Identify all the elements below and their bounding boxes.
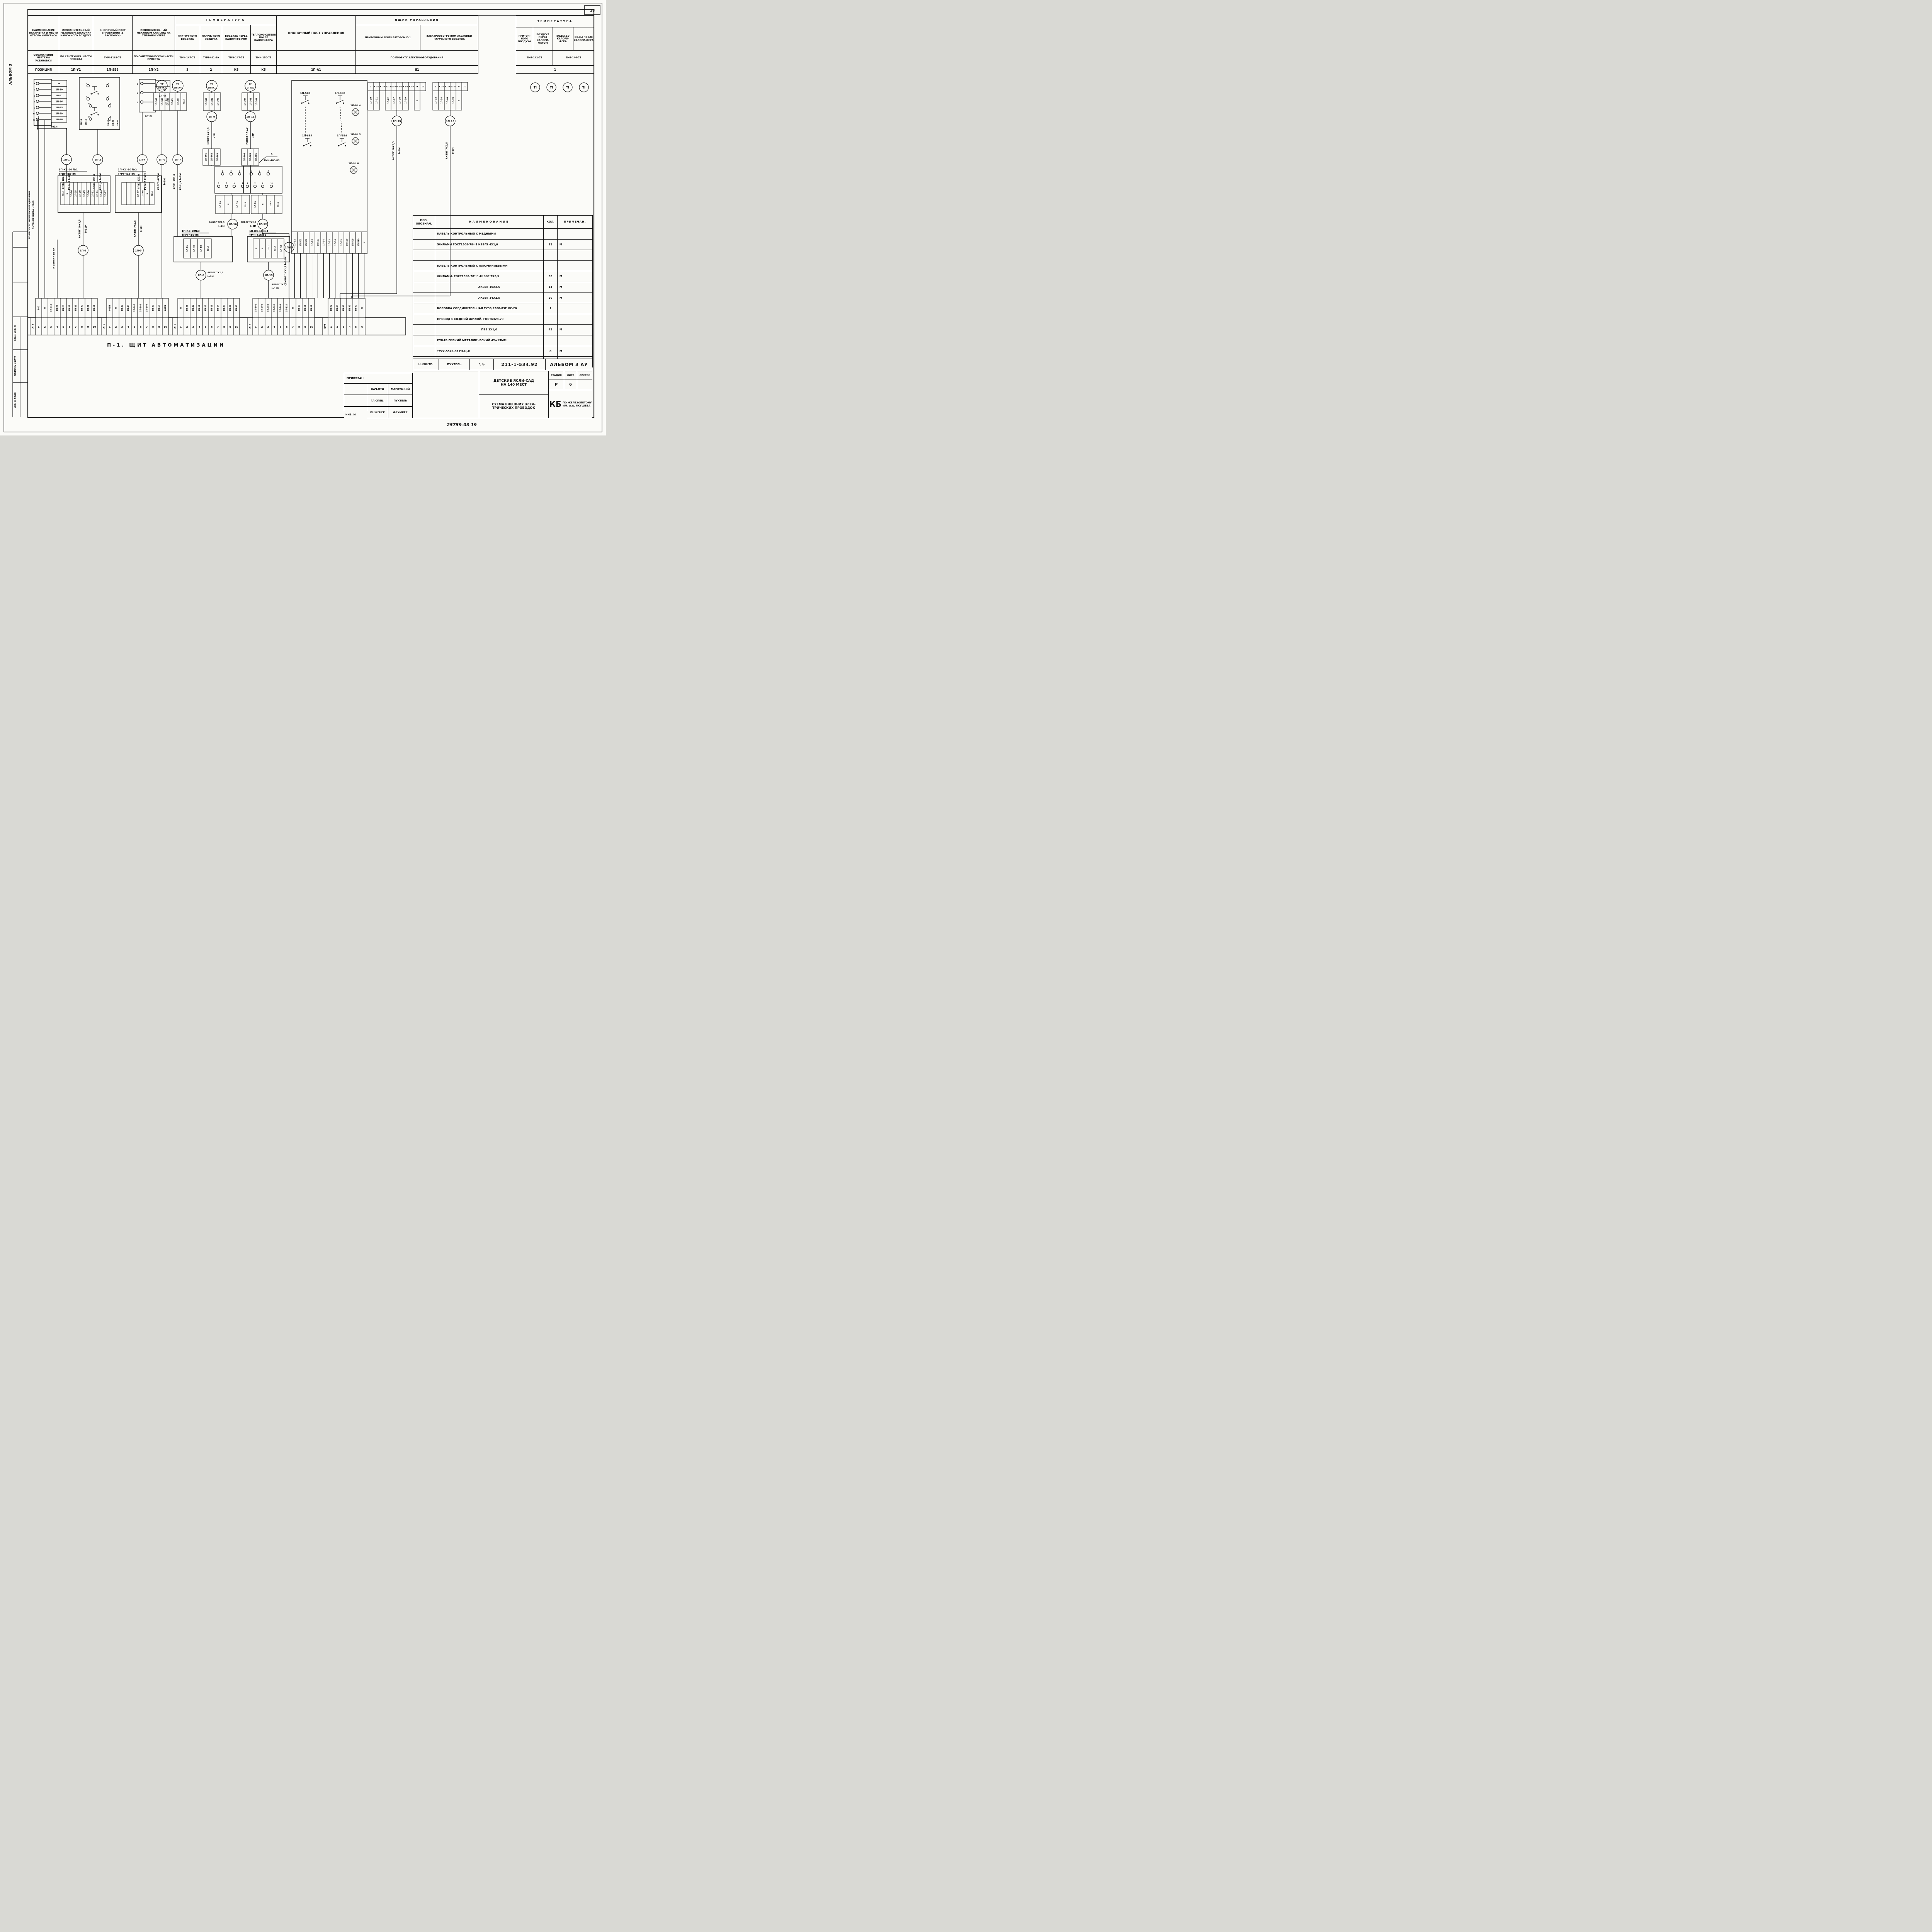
wire-label: 801N [245, 202, 247, 207]
sheet-title: СХЕМА ВНЕШНИХ ЭЛЕК- ТРИЧЕСКИХ ПРОВОДОК [479, 395, 549, 418]
position-circle-label: 1П-2 [95, 158, 101, 161]
org-name-line2: ИМ. А.А. ЯКУШЕВА [563, 404, 592, 407]
rotated-annotation: 1П-28 [112, 120, 114, 126]
hdr-damper: ИСПОЛНИТЕЛЬ-НЫЙ МЕХАНИЗМ ЗАСЛОНКИ НАРУЖН… [59, 16, 93, 51]
lists-label: ЛИСТОВ [577, 371, 592, 379]
annotation: 9 [262, 182, 264, 184]
wire-label: 1П-305 [249, 153, 252, 161]
wire-label: X1-7 [374, 86, 379, 88]
wire-label: 1П-39 [452, 97, 454, 104]
signer-name: ФРУМКЕР [388, 406, 413, 418]
strip-wire-label: 1П-35 [236, 304, 238, 311]
hdr-temp-group: ТЕМПЕРАТУРА [175, 16, 277, 25]
terminal-circle [141, 82, 143, 85]
wire-label: 1П-49 [171, 98, 173, 105]
ncontr-signature: ∿∿ [470, 359, 494, 370]
drawing-sheet: { "page":{"number":"18","album_side":"АЛ… [0, 0, 606, 435]
strip-wire-label: 1П-48 [128, 304, 130, 311]
contact-dot [90, 114, 92, 115]
strip-wire-label: 1П-40 [355, 304, 357, 311]
terminal-circle [267, 173, 270, 175]
strip-terminal-number: 8 [223, 325, 225, 328]
rotated-annotation: Р3-Ц-Х l=2М [179, 173, 182, 190]
annotation: l=2М [218, 225, 224, 228]
list-label: ЛИСТ [564, 371, 577, 379]
wire-label: X2-2 [408, 86, 414, 88]
strip-wire-label: 1П-49 [152, 304, 155, 311]
lamp-label: 1П-HL4 [350, 104, 361, 107]
wire-label: 1П-27 [104, 190, 107, 197]
strip-wire-label: 1П-502 [261, 304, 264, 312]
position-circle-label: 1П-13 [264, 274, 272, 277]
strip-wire-label: 1П-34 [230, 304, 232, 311]
device-box [243, 166, 282, 193]
annotation: l=9М [207, 276, 214, 278]
parts-note: М [558, 346, 593, 357]
annotation: АКВВГ 7Х2,5 [209, 221, 225, 224]
wire-label: X1-7 [439, 86, 444, 88]
sensor-circle [245, 80, 256, 91]
annotation: 1П-SB8 [335, 92, 345, 95]
position-circle-label: 1П-16 [446, 119, 454, 122]
hdr-param: НАИМЕНОВАНИЕ ПАРАМЕТРА И МЕСТО ОТБОРА ИМ… [28, 16, 59, 51]
wire-label: 1П-303 [216, 153, 219, 161]
terminal-circle [233, 185, 236, 188]
parts-pos [413, 250, 435, 261]
signer-role: ИНЖЕНЕР [367, 406, 388, 418]
terminal-circle [254, 185, 257, 188]
terminal-circle [36, 88, 39, 91]
rotated-annotation: КВВГЭ 4Х1,0 [157, 173, 160, 190]
position-circle-label: 1П-10 [228, 223, 237, 226]
strip-wire-label: 1П-511 [50, 304, 53, 312]
wire-label: 1П-25 [56, 107, 63, 109]
strip-terminal-number: 4 [349, 325, 351, 328]
parts-note [558, 260, 593, 271]
strip-wire-label: 1П-12 [205, 304, 207, 311]
strip-terminal-number: 4 [128, 325, 129, 328]
org-name: ПО ЖЕЛЕЗОБЕТОНУ ИМ. А.А. ЯКУШЕВА [563, 401, 592, 407]
parts-note [558, 335, 593, 346]
position-circle-label: 1П-12 [259, 223, 267, 226]
strip-wire-label: 1П-307 [134, 304, 136, 312]
ti-label: TI [582, 86, 585, 89]
project-title-line1: ДЕТСКИЕ ЯСЛИ-САД [493, 379, 534, 383]
rotated-annotation: Р3-Ц-Х l=2М [144, 173, 146, 190]
signer-role: НАЧ.ОТД [367, 383, 388, 395]
annotation: 1П-SB9 [337, 134, 347, 137]
parts-name: ТУ22-5570-83 РЗ-Ц-Х [435, 346, 544, 357]
parts-row-8: КОРОБКА СОЕДИНИТЕЛЬНАЯ ТУ36,2568-83Е КС-… [413, 303, 593, 314]
rotated-annotation: ИНВ. № ПОДЛ. [14, 392, 17, 408]
annotation: 11 [270, 182, 273, 184]
ncontr-role: Н.КОНТР. [413, 359, 439, 370]
terminal-circle [221, 173, 224, 175]
org-name-line1: ПО ЖЕЛЕЗОБЕТОНУ [563, 401, 592, 404]
wire-label: 1П-309 [167, 97, 169, 105]
parts-note: М [558, 293, 593, 303]
parts-pos [413, 346, 435, 357]
position-circle-label: 1П-7 [175, 158, 181, 161]
annotation: 9 [234, 182, 235, 184]
annotation: 25759-03 19 [447, 422, 477, 427]
wire-label: 1П-306 [255, 97, 258, 105]
desig-temp-1: ТМЧ-147-75 [175, 51, 200, 66]
parts-row-10: ПВ1 1Х1,042М [413, 325, 593, 335]
rotated-annotation: l=8М [163, 178, 166, 185]
wire-label: 1П-30 [56, 88, 63, 91]
ncontr-name: ПУХТЕЛЬ [439, 359, 470, 370]
wire-label-cell [131, 182, 136, 205]
strip-wire-label: 1П-17 [311, 304, 313, 311]
annotation: 18 [590, 9, 595, 13]
annotation: 2 [34, 89, 35, 91]
header-table: НАИМЕНОВАНИЕ ПАРАМЕТРА И МЕСТО ОТБОРА ИМ… [28, 15, 478, 74]
parts-name: ПВ1 1Х1,0 [435, 325, 544, 335]
terminal-circle [36, 82, 39, 85]
contact-dot [90, 93, 92, 94]
wire-label: 1П-301 [205, 97, 207, 105]
strip-wire-label: 801N [165, 305, 167, 311]
strip-terminal-number: 6 [361, 325, 363, 328]
parts-row-4: КАБЕЛЬ КОНТРОЛЬНЫЙ С АЛЮМИНИЕВЫМИ [413, 260, 593, 271]
terminal-circle [36, 94, 39, 97]
desig-damper: ПО САНТЕХНИЧ. ЧАСТИ ПРОЕКТА [59, 51, 93, 66]
wire-label: 1П-14 [323, 239, 325, 246]
contact-dot [308, 102, 309, 104]
annotation: 20 [33, 119, 35, 121]
parts-note [558, 303, 593, 314]
annotation: 1П-SB7 [302, 134, 313, 137]
strip-terminal-number: 9 [304, 325, 306, 328]
parts-row-12: ТУ22-5570-83 РЗ-Ц-Х8М [413, 346, 593, 357]
strip-terminal-number: 9 [230, 325, 231, 328]
strip-wire-label: 1П-30 [81, 304, 83, 311]
wire-label: 1П-17 [393, 97, 395, 104]
temp-right-table: ТЕМПЕРАТУРА ПРИТОЧ-НОГО ВОЗДУХА ВОЗДУХА … [516, 15, 594, 74]
annotation: l=2М [250, 225, 256, 228]
desig-temp-4: ТМЧ-150-75 [251, 51, 277, 66]
strip-terminal-number: 10 [235, 325, 238, 328]
strip-wire-label: 1П-42 [192, 304, 195, 311]
pos-button: 1П-SВ3 [93, 66, 133, 74]
parts-name: ЖИЛАМИ. ГОСТ1508-78* Е АКВВГ 7Х2,5 [435, 271, 544, 282]
annotation: 11 [242, 182, 244, 184]
rotated-annotation: Р3-Ц-Х l=2М [68, 173, 71, 190]
wire-label: 1П-509 [352, 238, 354, 247]
wire-label: 1П-47 [137, 190, 139, 197]
wire-label: 1П-32 [435, 97, 437, 104]
annotation: 2' [110, 103, 112, 105]
lamp-label: 1П-HL6 [349, 162, 359, 165]
strip-wire-label: 1П-11 [199, 304, 201, 311]
parts-pos [413, 335, 435, 346]
lamp-label: 1П-HL5 [350, 133, 361, 136]
strip-terminal-number: 9 [87, 325, 89, 328]
signer-name: ПУХТЕЛЬ [388, 395, 413, 406]
annotation: 1П-SB6 [300, 92, 311, 95]
wire-label: 1П-503 [317, 238, 319, 247]
wire-label: 1П-48 [142, 190, 144, 197]
tr-temp-group: ТЕМПЕРАТУРА [516, 16, 594, 27]
terminal-circle [246, 185, 249, 188]
wire-label: 10 [463, 86, 466, 88]
rotated-annotation: l=11М [85, 224, 87, 233]
terminal-circle [36, 106, 39, 109]
hdr-temp-2: НАРУЖ-НОГО ВОЗДУХА [200, 25, 222, 51]
parts-name: ЖИЛАМИ ГОСТ1508-78* Е КВВГЭ 4Х1,0 [435, 239, 544, 250]
parts-note [558, 250, 593, 261]
parts-h-pos: ПОЗ. ОБОЗНАЧ. [413, 216, 435, 229]
strip-wire-label: 1П-510 [286, 304, 288, 312]
wire-label: 1П-11 [254, 201, 257, 207]
parts-name: КАБЕЛЬ КОНТРОЛЬНЫЙ С МЕДНЫМИ [435, 229, 544, 240]
strip-wire-label: 1П-308 [140, 304, 142, 312]
wire-label: 1П-307 [155, 97, 158, 105]
tr-tm-1: ТМ4-142-75 [516, 51, 553, 66]
strip-terminal-number: 5 [205, 325, 207, 328]
parts-qty: 1 [544, 303, 558, 314]
wire-label: 1П-28 [56, 119, 63, 121]
annotation: 2 [231, 170, 232, 172]
terminal-circle [270, 185, 273, 188]
strip-terminal-number: 8 [152, 325, 154, 328]
terminal-circle [141, 92, 143, 94]
parts-name: КАБЕЛЬ КОНТРОЛЬНЫЙ С АЛЮМИНИЕВЫМИ [435, 260, 544, 271]
row-position-label: ПОЗИЦИЯ [28, 66, 59, 74]
rotated-annotation: l=9М [140, 225, 143, 232]
rotated-annotation: АКВВГ 10Х2,5 [392, 141, 395, 160]
junction-dot [66, 128, 67, 129]
annotation: 3 [34, 95, 35, 97]
position-circle-label: 1П-15 [393, 119, 401, 122]
pushbutton-contact [338, 143, 345, 146]
strip-terminal-number: 3 [50, 325, 52, 328]
strip-terminal-number: 6 [211, 325, 213, 328]
tr-pos: 1 [516, 66, 594, 74]
annotation: 1' [88, 103, 90, 105]
annotation: 3' [88, 116, 90, 118]
rotated-annotation: 1П-27 [107, 120, 110, 126]
pushbutton-contact [91, 112, 98, 115]
rotated-annotation: 4ПВ1 1Х1,0 [173, 174, 176, 189]
wire-label: 1П-39 [405, 97, 407, 104]
position-circle-label: 1П-3 [80, 249, 87, 252]
parts-qty [544, 250, 558, 261]
wire-label: 1 [435, 86, 437, 88]
link-dashed-line [340, 107, 342, 135]
org-cell: КБ ПО ЖЕЛЕЗОБЕТОНУ ИМ. А.А. ЯКУШЕВА [549, 390, 592, 418]
wire-label: 1П-501 [299, 238, 302, 247]
terminal-circle [230, 173, 233, 175]
parts-table: ПОЗ. ОБОЗНАЧ. НАИМЕНОВАНИЕ КОЛ. ПРИМЕЧАН… [413, 215, 593, 367]
strip-terminal-number: 6 [286, 325, 288, 328]
strip-wire-label: 1П-10 [298, 304, 301, 311]
position-circle-label: 1П-1 [63, 158, 70, 161]
parts-name: АКВВГ 14Х2,5 [435, 293, 544, 303]
wire-label: 1П-28 [79, 190, 81, 197]
annotation: 3 [239, 170, 240, 172]
device-box [215, 166, 250, 193]
parts-pos [413, 314, 435, 325]
wire-label: 1П-11 [219, 201, 221, 207]
wire-label: 1П-41 [236, 201, 238, 207]
rotated-annotation: l=2М [213, 133, 216, 139]
pos-valve: 1П-У2 [133, 66, 175, 74]
terminal-circle [87, 85, 90, 87]
wire-label: 1П-303 [217, 97, 219, 105]
hdr-button-post: КНОПОЧНЫЙ ПОСТ УПРАВЛЕНИЯ (В ЗАСЛОНКИ) [93, 16, 133, 51]
annotation: АКВВГ 7Х2,5 [272, 284, 287, 286]
parts-qty [544, 229, 558, 240]
terminal-circle [262, 185, 264, 188]
pushbutton-contact [302, 100, 309, 103]
wire-label: N [262, 204, 264, 205]
wire-label: 1П-38 [440, 97, 443, 104]
pos-damper: 1П-У1 [59, 66, 93, 74]
strip-terminal-number: 1 [255, 325, 257, 328]
parts-pos [413, 260, 435, 271]
parts-qty [544, 314, 558, 325]
wire-label: X2-1 [403, 86, 408, 88]
org-abbr: КБ [549, 400, 561, 409]
parts-row-2: ЖИЛАМИ ГОСТ1508-78* Е КВВГЭ 4Х1,012М [413, 239, 593, 250]
annotation: ТМЧ-416-86 [59, 172, 76, 175]
strip-wire-label: 1П-31 [87, 304, 90, 311]
tr-col-2: ВОЗДУХА ПЕРЕД КАЛОРИ-ФЕРОМ [533, 27, 553, 51]
wire-label: N [58, 83, 60, 85]
rotated-annotation: ПО ПРОЕКТУ ЭЛЕКТРООБОРУДОВАНИЯ [29, 190, 31, 239]
strip-wire-label: 800 [38, 306, 40, 310]
rotated-annotation: Р3-Ц-Х l=2М [99, 173, 102, 190]
annotation: 5 [271, 153, 273, 156]
rotated-annotation: 1П-25 [117, 120, 119, 126]
strip-terminal-number: 3 [343, 325, 345, 328]
annotation: 1П-КС-10№3 [182, 230, 200, 233]
wire-label: 1П-510 [357, 238, 360, 247]
strip-terminal-number: 9 [158, 325, 160, 328]
annotation: 1П-КС-10 №4 [249, 230, 269, 233]
parts-name: АКВВГ 10Х2,5 [435, 282, 544, 293]
terminal-circle [238, 173, 241, 175]
annotation: АКВВГ 7Х2,5 [207, 272, 223, 274]
contact-dot [97, 93, 99, 94]
position-circle-label: 1П-14 [285, 246, 293, 249]
strip-terminal-number: 3 [267, 325, 269, 328]
wire-label: 801N [274, 246, 276, 252]
parts-pos [413, 229, 435, 240]
wire-label: 1П-508 [346, 238, 348, 247]
contact-dot [336, 102, 337, 104]
stage-label: СТАДИЯ [549, 371, 564, 379]
rotated-annotation: 1П-24 [80, 119, 83, 125]
parts-h-note: ПРИМЕЧАН. [558, 216, 593, 229]
signer-role: ГЛ.СПЕЦ. [367, 395, 388, 406]
project-title-line2: НА 140 МЕСТ [501, 383, 527, 387]
strip-wire-label: 1П-508 [274, 304, 276, 312]
strip-wire-label: 1П-47 [121, 304, 124, 311]
terminal-circle [141, 101, 143, 104]
wire-label: 1П-26 [56, 100, 63, 103]
wire-label: 801N [207, 246, 209, 252]
wire-label: 1П-33 [328, 239, 331, 246]
ti-label: TI [550, 86, 553, 89]
wire-label: N [416, 100, 418, 101]
strip-terminal-number: 7 [217, 325, 219, 328]
strip-terminal-number: 10 [310, 325, 313, 328]
annotation: 2 [107, 83, 109, 85]
strip-name: XT3 [174, 324, 177, 329]
wire-label: X1-8 [444, 86, 450, 88]
wire-label: 1П-502 [305, 238, 308, 247]
annotation: 7 [255, 182, 256, 184]
parts-note: М [558, 325, 593, 335]
strip-terminal-number: 6 [69, 325, 71, 328]
parts-row-1: КАБЕЛЬ КОНТРОЛЬНЫЙ С МЕДНЫМИ [413, 229, 593, 240]
wire-label: 1П-26 [70, 190, 73, 197]
parts-name: ПРОВОД С МЕДНОЙ ЖИЛОЙ. ГОСТ6323-79 [435, 314, 544, 325]
wire-label: N [262, 248, 264, 249]
strip-terminal-number: 5 [134, 325, 136, 328]
wire-label: 1П-302 [211, 153, 213, 161]
wire-label: 1П-304 [243, 153, 246, 161]
rotated-annotation: ПОДПИСЬ И ДАТА [14, 356, 17, 376]
strip-wire-label: N [44, 307, 46, 309]
rotated-annotation: АКВВГ 7Х2,5 [446, 142, 448, 159]
wire-label: X1-8 [379, 86, 385, 88]
parts-pos [413, 293, 435, 303]
wire-label-cell [122, 182, 126, 205]
parts-name: РУКАВ ГИБКИЙ МЕТАЛЛИЧЕСКИЙ dУ=15ММ [435, 335, 544, 346]
sensor-id-label: 1П-RK1 [208, 87, 216, 89]
strip-wire-label: 1П-29 [75, 304, 77, 311]
strip-terminal-number: 3 [192, 325, 194, 328]
annotation: АКВВГ 7Х2,5 [241, 221, 257, 224]
rotated-annotation: l=3М [398, 147, 401, 154]
inv-number-label: ИНВ. № [344, 411, 367, 418]
strip-wire-label: 1П-11 [304, 304, 307, 311]
parts-qty: 42 [544, 325, 558, 335]
desig-box: ПО ПРОЕКТУ ЭЛЕКТРООБОРУДОВАНИЯ [356, 51, 478, 66]
tr-col-1: ПРИТОЧ-НОГО ВОЗДУХА [516, 27, 533, 51]
strip-terminal-number: 4 [199, 325, 201, 328]
sensor-circle [172, 80, 183, 91]
strip-terminal-number: 8 [81, 325, 83, 328]
rotated-annotation: АЛЬБОМ 3 [9, 64, 13, 85]
pos-post2: 1П-А1 [277, 66, 356, 74]
terminal-circle [259, 173, 261, 175]
strip-terminal-number: 2 [186, 325, 188, 328]
strip-terminal-number: 1 [38, 325, 40, 328]
contact-dot [345, 145, 346, 146]
wire-label: 1П-302 [211, 97, 213, 105]
wire-label: N [162, 83, 164, 85]
ti-label: TI [534, 86, 537, 89]
strip-terminal-number: 7 [292, 325, 294, 328]
junction-dot [37, 128, 38, 129]
parts-pos [413, 239, 435, 250]
wire-label: 1П-12 [294, 239, 296, 246]
strip-terminal-number: 1 [180, 325, 182, 328]
strip-wire-label: 1П-509 [280, 304, 282, 312]
wire-label: 1П-11 [268, 245, 270, 252]
annotation: ТМЧ-416-86 [249, 233, 267, 236]
desig-temp-3: ТМЧ-147-75 [222, 51, 251, 66]
wire-label: N [66, 193, 68, 194]
strip-name: XT4 [249, 324, 252, 329]
annotation: l=13М [272, 287, 279, 290]
annotation: ТМЧ-416-86 [182, 233, 199, 236]
